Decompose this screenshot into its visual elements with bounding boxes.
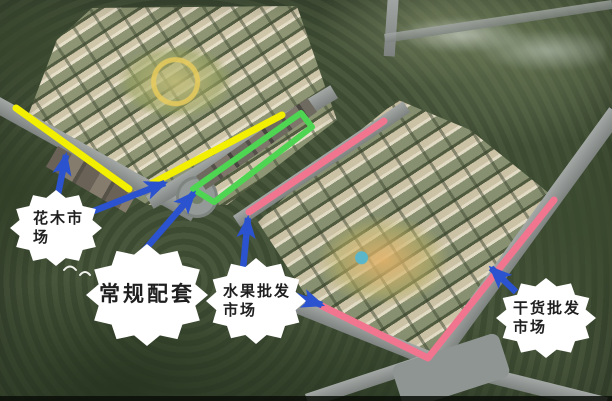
- callout-fruit-wholesale-market-label: 水果批发市场: [223, 282, 295, 321]
- callout-dried-goods-wholesale-market-label: 干货批发市场: [513, 299, 585, 338]
- callout-standard-facilities-label: 常规配套: [99, 281, 195, 308]
- aerial-site-plan: 花木市场 常规配套 水果批发市场 干货批发市场: [0, 0, 612, 401]
- image-bottom-border: [0, 396, 612, 401]
- roundabout-center: [190, 190, 204, 204]
- callout-flower-market-label: 花木市场: [33, 209, 87, 248]
